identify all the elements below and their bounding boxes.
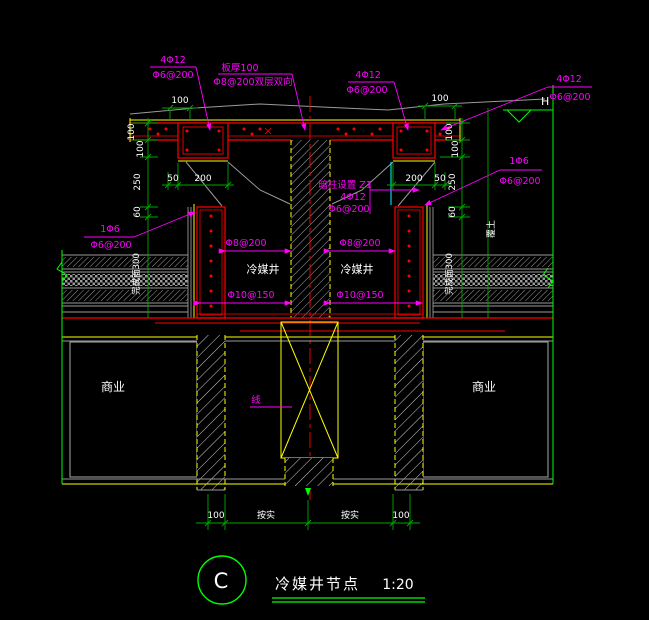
dim-right-2: 100 (451, 140, 461, 157)
column-right (395, 335, 423, 490)
beam-right (393, 123, 435, 161)
shaft-right-label: 冷媒井 (341, 262, 374, 276)
wall-below-opening (285, 458, 333, 486)
title-block: C 冷媒井节点 1:20 (198, 556, 425, 604)
column-left (197, 335, 225, 490)
well-wall-right (395, 207, 423, 318)
room-left-outline (70, 342, 197, 477)
label-top-mid-1: 4Φ12 (355, 70, 381, 81)
level-marker: H (503, 95, 553, 122)
label-top-left-2: Φ6@200 (152, 70, 193, 81)
dim-left-3: 250 (133, 173, 143, 190)
beam-left (178, 123, 228, 161)
label-top-right-2: Φ6@200 (549, 92, 590, 103)
label-top-left-1: 4Φ12 (160, 55, 186, 66)
label-tie-right-1: 1Φ6 (509, 156, 529, 167)
cad-canvas: H (0, 0, 649, 620)
dim-left-2: 100 (136, 140, 146, 157)
label-slab-2: Φ8@200双层双向 (213, 76, 292, 88)
dim-bottom-2: 按实 (257, 509, 275, 521)
upturn-right-note: 完成面300 (444, 253, 455, 295)
layer-band (62, 257, 188, 267)
room-right-outline (423, 342, 548, 477)
label-column-note-2: 4Φ12 (340, 192, 366, 203)
dim-bottom-1: 100 (207, 511, 224, 521)
dim-right-4: 60 (448, 206, 458, 218)
detail-scale: 1:20 (382, 577, 413, 593)
dim-left-4: 60 (133, 206, 143, 218)
label-slab-1: 板厚100 (221, 62, 258, 74)
shaft-left-label: 冷媒井 (247, 262, 280, 276)
detail-drawing: H (0, 0, 649, 620)
dim-right-3: 250 (448, 173, 458, 190)
reserved-opening-xbox (281, 322, 338, 458)
room-left-label: 商业 (101, 379, 125, 394)
detail-letter: C (214, 569, 229, 593)
floor-slab (62, 314, 553, 341)
layer-band (62, 274, 188, 286)
dim-top-left: 100 (171, 96, 188, 106)
label-center-note: 线 (251, 394, 261, 406)
dim-bottom-4: 100 (392, 511, 409, 521)
dim-beam-left-1: 50 (167, 174, 179, 184)
dim-beam-right-1: 200 (405, 174, 422, 184)
dim-beam-right-2: 50 (434, 174, 446, 184)
slab-rebar-crosses (203, 128, 413, 134)
dim-right-1: 100 (445, 123, 455, 140)
dim-bottom-3: 按实 (341, 509, 359, 521)
central-wall (291, 140, 330, 318)
dim-beam-left-2: 200 (194, 174, 211, 184)
label-tie-left-2: Φ6@200 (90, 240, 131, 251)
label-wall-h-left: Φ8@200 (225, 238, 266, 249)
upturn-left-note: 完成面300 (131, 253, 142, 295)
layer-band (62, 290, 188, 301)
soil-note: 覆土 (485, 220, 497, 238)
detail-title: 冷媒井节点 (275, 575, 360, 593)
roof-layers-left (62, 204, 194, 318)
room-right-label: 商业 (472, 379, 496, 394)
label-wall-v-left: Φ10@150 (227, 290, 274, 301)
label-wall-h-right: Φ8@200 (339, 238, 380, 249)
dim-left-1: 100 (127, 123, 137, 140)
label-top-mid-2: Φ6@200 (346, 85, 387, 96)
label-wall-v-right: Φ10@150 (336, 290, 383, 301)
dim-top-right: 100 (431, 94, 448, 104)
level-label: H (541, 95, 549, 108)
label-column-note-3: Φ6@200 (328, 204, 369, 215)
well-wall-left (197, 207, 225, 318)
label-tie-left-1: 1Φ6 (100, 224, 120, 235)
label-tie-right-2: Φ6@200 (499, 176, 540, 187)
label-top-right-1: 4Φ12 (556, 74, 582, 85)
label-column-note-1: 暗柱设置 Z1 (318, 179, 372, 191)
